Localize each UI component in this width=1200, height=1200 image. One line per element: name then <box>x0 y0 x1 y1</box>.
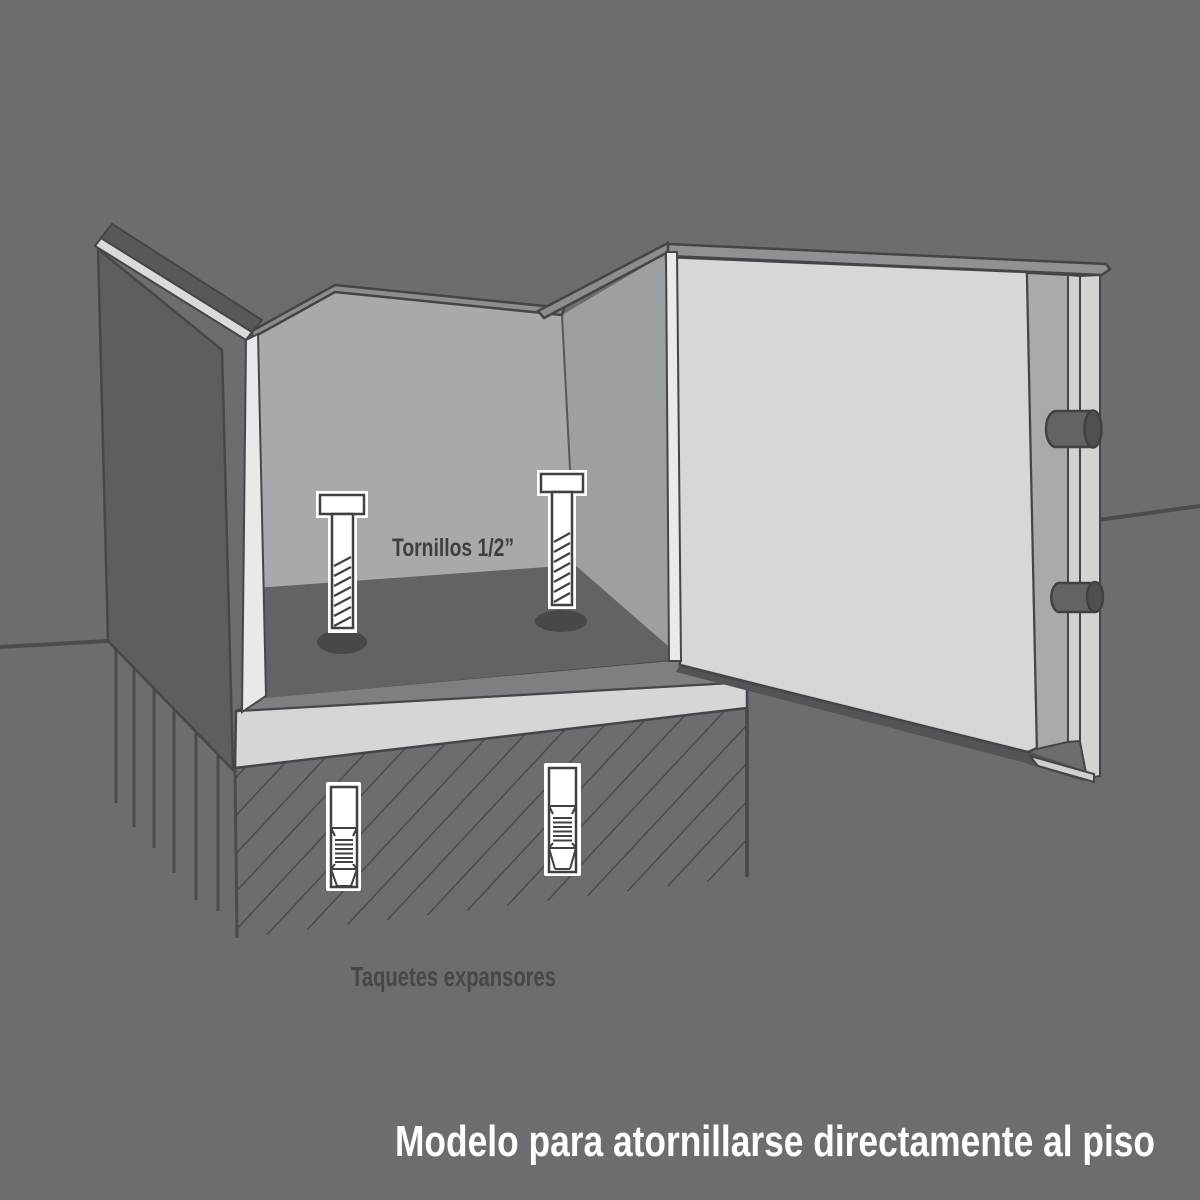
anchor-body <box>549 768 576 872</box>
anchors-label: Taquetes expansores <box>351 961 556 992</box>
caption-title: Modelo para atornillarse directamente al… <box>395 1117 1155 1166</box>
safe-body <box>95 224 747 770</box>
bolt-head <box>320 495 364 514</box>
door-lock-bolt-bottom <box>1051 582 1103 612</box>
expansion-anchor-left <box>326 782 361 891</box>
safe-anchoring-diagram: Tornillos 1/2” <box>0 0 1200 1200</box>
expansion-anchor-right <box>544 763 581 876</box>
floor-bolt-hole-right <box>535 610 587 632</box>
lock-bolt-cap <box>1085 411 1102 448</box>
lock-bolt-cap <box>1087 582 1103 612</box>
illustration-page: Tornillos 1/2” <box>0 0 1200 1200</box>
door-edge-light-sliver <box>1068 275 1080 742</box>
ground-front-left-edge <box>235 769 237 938</box>
door-lock-bolt-top <box>1046 411 1102 448</box>
floor-bolt-hole-left <box>317 630 367 654</box>
bolts-label: Tornillos 1/2” <box>392 534 514 562</box>
door-edge-outer-face <box>1080 275 1100 778</box>
bolt-head <box>541 474 583 492</box>
anchor-body <box>331 787 357 887</box>
